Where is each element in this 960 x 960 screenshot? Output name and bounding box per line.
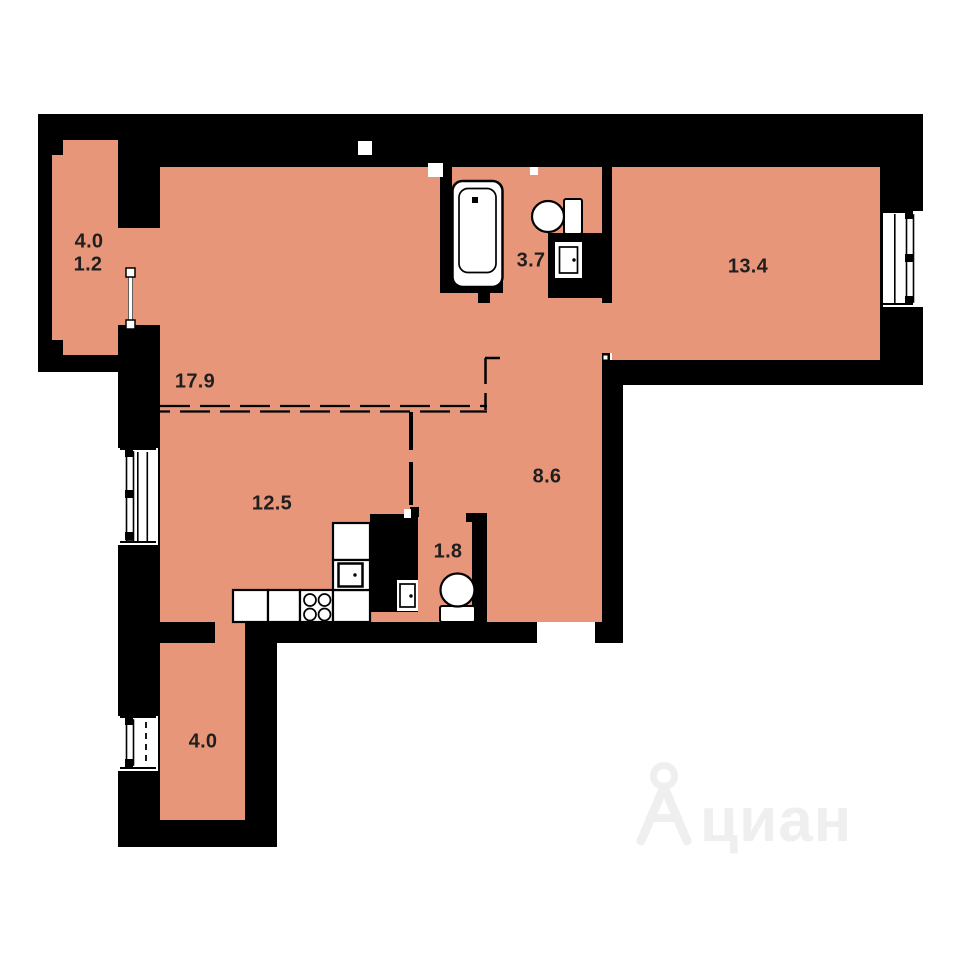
room-label-loggia-top-total: 4.0 (75, 231, 104, 254)
loggia-top-doorway-floor (118, 228, 160, 325)
kitchen-window (118, 448, 158, 545)
bedroom-doorway-floor (602, 303, 612, 353)
room-label-bathroom: 3.7 (517, 250, 546, 273)
room-label-loggia-top-reduced: 1.2 (74, 254, 103, 277)
cian-pin-icon (630, 760, 694, 848)
toilet-bathroom (532, 199, 582, 234)
sink-kitchen (339, 564, 363, 587)
toilet-wc (440, 574, 475, 623)
room-label-kitchen-living: 12.5 (252, 493, 292, 516)
bathtub (453, 181, 503, 287)
bedroom-window (883, 211, 923, 307)
room-label-bedroom: 13.4 (728, 256, 768, 279)
room-label-wc: 1.8 (434, 541, 463, 564)
sink-wc (397, 580, 418, 611)
loggia-bottom-window (118, 716, 158, 771)
loggia-bottom-doorway-floor (215, 622, 245, 643)
watermark-text: циан (700, 794, 852, 848)
entrance-wall-left (478, 622, 537, 643)
sink-bathroom (555, 242, 582, 278)
room-label-loggia-bottom: 4.0 (189, 731, 218, 754)
room-label-corridor: 8.6 (533, 466, 562, 489)
floor-plan-canvas: 4.0 1.2 17.9 3.7 13.4 12.5 8.6 1.8 4.0 ц… (0, 0, 960, 960)
watermark: циан (630, 760, 852, 848)
room-label-hallway: 17.9 (175, 371, 215, 394)
